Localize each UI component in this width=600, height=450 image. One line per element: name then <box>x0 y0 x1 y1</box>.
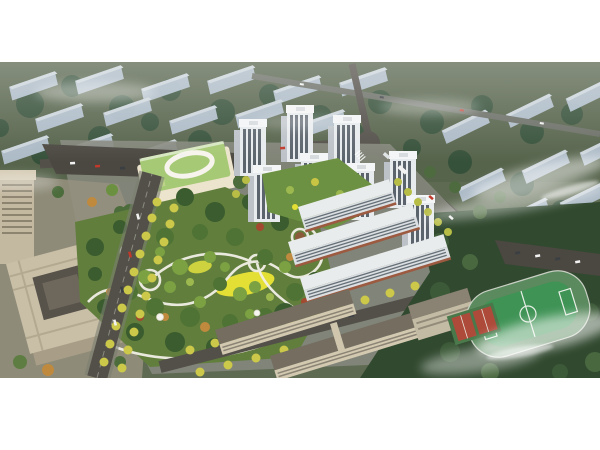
rendering-scene <box>0 62 600 378</box>
horizon-haze <box>0 62 600 162</box>
rendering-photo <box>0 62 600 378</box>
page <box>0 0 600 450</box>
